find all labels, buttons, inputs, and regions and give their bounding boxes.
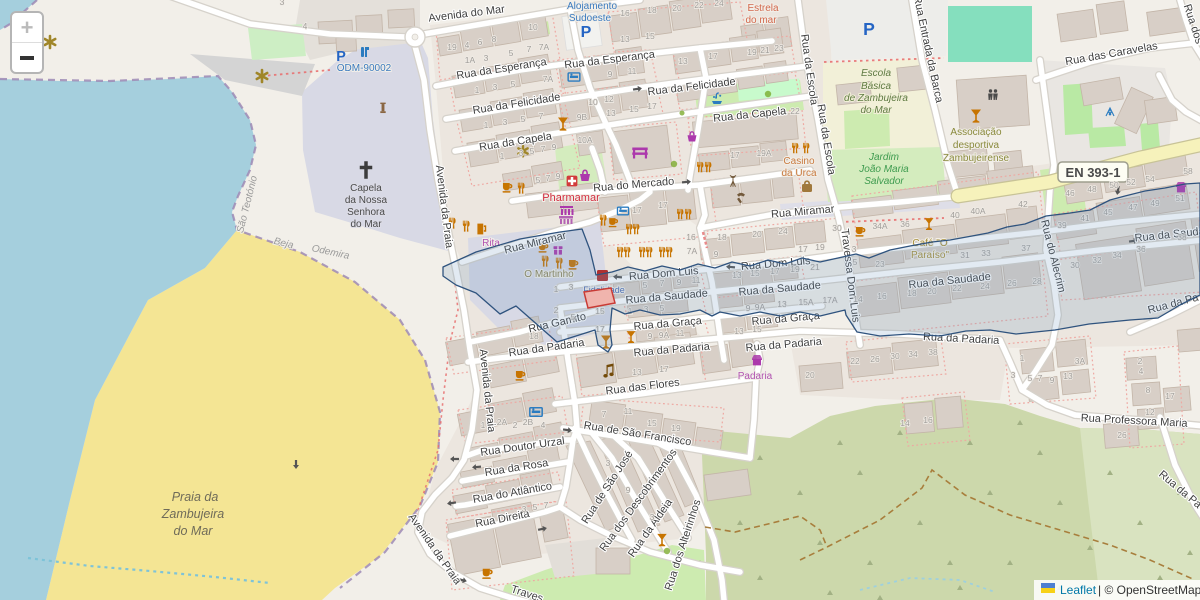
svg-text:7: 7	[1038, 373, 1043, 383]
svg-text:3: 3	[650, 512, 655, 522]
svg-text:Casino: Casino	[783, 156, 815, 167]
svg-text:17: 17	[647, 101, 657, 111]
svg-text:5: 5	[1028, 373, 1033, 383]
svg-text:36: 36	[900, 219, 910, 229]
svg-text:17: 17	[1165, 391, 1175, 401]
svg-text:2: 2	[513, 420, 518, 430]
svg-text:10: 10	[588, 97, 598, 107]
svg-text:10A: 10A	[577, 135, 592, 145]
svg-text:42: 42	[1018, 199, 1028, 209]
svg-text:40: 40	[950, 210, 960, 220]
svg-text:| © OpenStreetMap: | © OpenStreetMap	[1098, 583, 1200, 597]
svg-text:7: 7	[539, 111, 544, 121]
svg-text:26: 26	[870, 354, 880, 364]
svg-text:24: 24	[714, 0, 724, 8]
svg-text:3: 3	[606, 458, 611, 468]
svg-text:19: 19	[671, 423, 681, 433]
svg-text:9: 9	[552, 142, 557, 152]
svg-text:Escola: Escola	[861, 68, 891, 79]
svg-text:4: 4	[303, 21, 308, 31]
svg-text:7: 7	[602, 409, 607, 419]
svg-text:9A: 9A	[659, 330, 670, 340]
svg-text:3: 3	[852, 244, 857, 254]
svg-text:1: 1	[481, 420, 486, 430]
svg-text:10: 10	[528, 22, 538, 32]
svg-text:48: 48	[1087, 184, 1097, 194]
svg-text:13: 13	[606, 108, 616, 118]
svg-text:7A: 7A	[687, 246, 698, 256]
svg-text:9: 9	[626, 485, 631, 495]
svg-text:Praia da: Praia da	[172, 490, 219, 504]
svg-text:11: 11	[624, 406, 633, 416]
svg-text:5: 5	[521, 114, 526, 124]
svg-text:9: 9	[648, 331, 653, 341]
svg-text:Salvador: Salvador	[864, 176, 904, 187]
svg-text:ODM-90002: ODM-90002	[337, 63, 392, 74]
svg-text:3: 3	[484, 53, 489, 63]
svg-text:20: 20	[752, 229, 762, 239]
svg-text:9: 9	[714, 249, 719, 259]
svg-text:do mar: do mar	[745, 15, 777, 26]
svg-text:34: 34	[908, 349, 918, 359]
svg-text:15: 15	[629, 104, 639, 114]
svg-text:Pharmamar: Pharmamar	[542, 192, 600, 204]
svg-text:19: 19	[815, 242, 825, 252]
svg-text:do Mar: do Mar	[174, 524, 214, 538]
svg-text:7A: 7A	[539, 42, 550, 52]
svg-text:11: 11	[628, 66, 637, 76]
svg-text:52: 52	[1126, 177, 1136, 187]
svg-text:9: 9	[1050, 375, 1055, 385]
svg-text:9: 9	[608, 69, 613, 79]
svg-text:Associação: Associação	[950, 127, 1002, 138]
svg-text:19A: 19A	[756, 148, 771, 158]
svg-text:40A: 40A	[970, 206, 985, 216]
svg-text:21: 21	[760, 45, 770, 55]
svg-text:2B: 2B	[523, 417, 534, 427]
svg-text:Básica: Básica	[861, 81, 891, 92]
svg-text:7A: 7A	[543, 74, 554, 84]
svg-text:3: 3	[493, 82, 498, 92]
svg-text:17: 17	[659, 364, 669, 374]
svg-text:22: 22	[694, 0, 704, 10]
svg-text:de Zambujeira: de Zambujeira	[844, 93, 908, 104]
svg-text:50: 50	[1109, 180, 1119, 190]
svg-text:16: 16	[620, 8, 630, 18]
svg-text:13: 13	[734, 326, 744, 336]
svg-text:7: 7	[546, 173, 551, 183]
svg-text:12: 12	[1145, 407, 1155, 417]
svg-text:Zambujeirense: Zambujeirense	[943, 153, 1010, 164]
svg-text:18: 18	[529, 331, 539, 341]
svg-text:1: 1	[475, 85, 480, 95]
svg-text:5: 5	[530, 146, 535, 156]
svg-text:1: 1	[484, 120, 489, 130]
svg-text:EN 393-1: EN 393-1	[1066, 165, 1121, 180]
svg-text:1: 1	[1020, 353, 1025, 363]
svg-text:15: 15	[647, 418, 657, 428]
svg-text:7: 7	[527, 44, 532, 54]
svg-text:11: 11	[676, 328, 685, 338]
svg-text:16: 16	[686, 232, 696, 242]
svg-text:13: 13	[1063, 371, 1073, 381]
svg-text:23: 23	[774, 43, 784, 53]
svg-text:38: 38	[928, 347, 938, 357]
svg-text:22: 22	[850, 356, 860, 366]
svg-text:Jardim: Jardim	[868, 152, 899, 163]
svg-text:3: 3	[280, 0, 285, 7]
svg-text:30: 30	[832, 223, 842, 233]
svg-text:54: 54	[1145, 174, 1155, 184]
svg-text:15: 15	[752, 324, 762, 334]
svg-text:8: 8	[1146, 385, 1151, 395]
svg-text:4: 4	[465, 40, 470, 50]
svg-text:30: 30	[890, 351, 900, 361]
svg-text:5: 5	[509, 48, 514, 58]
svg-text:2: 2	[1138, 356, 1143, 366]
svg-text:8: 8	[492, 34, 497, 44]
svg-text:3: 3	[1011, 370, 1016, 380]
svg-text:6: 6	[478, 37, 483, 47]
svg-text:17: 17	[730, 150, 740, 160]
svg-text:17: 17	[658, 200, 668, 210]
svg-text:2A: 2A	[497, 417, 508, 427]
svg-text:desportiva: desportiva	[953, 140, 1000, 151]
svg-text:+: +	[21, 15, 34, 40]
svg-text:4: 4	[541, 420, 546, 430]
svg-text:26: 26	[1117, 430, 1127, 440]
svg-text:da Nossa: da Nossa	[345, 195, 388, 206]
svg-text:Zambujeira: Zambujeira	[161, 507, 225, 521]
svg-text:34A: 34A	[872, 221, 887, 231]
svg-text:20: 20	[805, 370, 815, 380]
svg-text:1: 1	[500, 151, 505, 161]
svg-text:Leaflet: Leaflet	[1060, 583, 1097, 597]
svg-text:Senhora: Senhora	[347, 207, 385, 218]
svg-text:14: 14	[900, 418, 910, 428]
svg-text:9: 9	[556, 171, 561, 181]
svg-text:Sudoeste: Sudoeste	[569, 13, 612, 24]
svg-text:3: 3	[522, 504, 527, 514]
svg-text:17: 17	[708, 51, 718, 61]
svg-text:46: 46	[1065, 188, 1075, 198]
svg-text:1A: 1A	[465, 55, 476, 65]
svg-text:da Urca: da Urca	[781, 168, 816, 179]
svg-text:do Mar: do Mar	[860, 105, 892, 116]
svg-text:3A: 3A	[1075, 356, 1086, 366]
svg-text:Capela: Capela	[350, 183, 382, 194]
svg-text:7: 7	[541, 144, 546, 154]
svg-text:19: 19	[747, 47, 757, 57]
svg-text:19: 19	[447, 42, 457, 52]
svg-text:4: 4	[1139, 366, 1144, 376]
svg-text:Alojamento: Alojamento	[567, 1, 617, 12]
svg-text:15: 15	[645, 31, 655, 41]
svg-text:24: 24	[778, 226, 788, 236]
svg-text:13: 13	[632, 367, 642, 377]
svg-text:5: 5	[533, 502, 538, 512]
svg-text:18: 18	[647, 5, 657, 15]
svg-text:9B: 9B	[577, 112, 588, 122]
svg-text:13: 13	[620, 34, 630, 44]
svg-text:Padaria: Padaria	[738, 371, 773, 382]
svg-text:5: 5	[536, 175, 541, 185]
svg-text:P: P	[581, 24, 592, 41]
svg-text:22: 22	[790, 106, 800, 116]
svg-text:João Maria: João Maria	[858, 164, 909, 175]
svg-text:3: 3	[519, 148, 524, 158]
svg-text:16: 16	[923, 415, 933, 425]
svg-text:Estrela: Estrela	[747, 3, 779, 14]
svg-text:20: 20	[672, 3, 682, 13]
svg-text:P: P	[863, 19, 875, 39]
svg-text:17: 17	[798, 244, 808, 254]
svg-text:5: 5	[511, 79, 516, 89]
svg-text:do Mar: do Mar	[350, 219, 382, 230]
svg-text:17: 17	[632, 205, 642, 215]
svg-text:12: 12	[604, 94, 614, 104]
svg-text:13: 13	[678, 56, 688, 66]
svg-text:58: 58	[1183, 166, 1193, 176]
svg-text:18: 18	[717, 232, 727, 242]
svg-text:7: 7	[544, 500, 549, 510]
svg-text:3: 3	[503, 117, 508, 127]
